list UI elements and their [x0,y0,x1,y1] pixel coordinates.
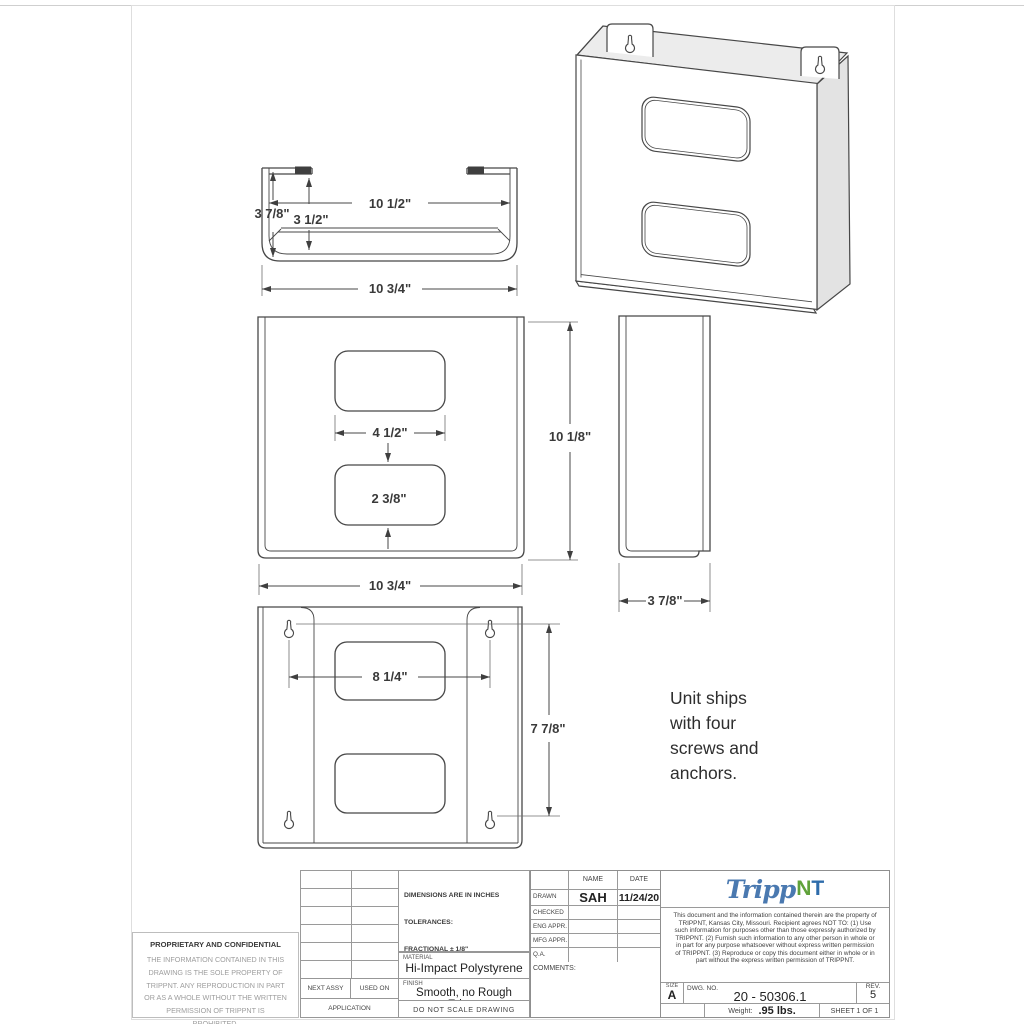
sheet-label: SHEET 1 OF 1 [831,1006,879,1015]
approval-row-checked: CHECKED [531,906,660,920]
drawing-views: 10 1/2" 3 7/8" 3 1/2" 10 3/4" [0,0,1024,870]
do-not-scale-cell: DO NOT SCALE DRAWING [398,1000,530,1018]
proprietary-block: PROPRIETARY AND CONFIDENTIAL THE INFORMA… [132,932,299,1018]
material-label: MATERIAL [399,953,529,961]
drawing-sheet: 10 1/2" 3 7/8" 3 1/2" 10 3/4" [0,0,1024,1024]
rev-cell: REV. 5 [856,983,889,1003]
back-fold-left [301,608,314,844]
material-value: Hi-Impact Polystyrene [399,961,529,975]
dwg-no-cell: DWG. NO. 20 - 50306.1 [684,983,856,1003]
back-keyhole-bottom-right [486,811,495,828]
approvals-header-row: NAME DATE [531,871,660,890]
view-isometric [576,24,850,313]
material-cell: MATERIAL Hi-Impact Polystyrene [398,952,530,979]
finish-label: FINISH [399,979,529,987]
back-fold-right [467,608,480,844]
company-logo: TrippNT [661,871,889,908]
iso-right-face [817,56,850,310]
dim-section-depth: 3 7/8" [254,206,289,221]
next-assy-label: NEXT ASSY [307,985,343,992]
weight-row: Weight: .95 lbs. SHEET 1 OF 1 [661,1004,889,1017]
finish-cell: FINISH Smooth, no Rough Edges [398,978,530,1001]
weight-value: .95 lbs. [758,1005,795,1017]
sheet-cell: SHEET 1 OF 1 [820,1004,889,1017]
revision-grid [300,870,399,979]
weight-cell: Weight: .95 lbs. [705,1004,820,1017]
proprietary-heading: PROPRIETARY AND CONFIDENTIAL [133,940,298,949]
section-lip-end-left [295,167,311,175]
side-inner [626,316,703,551]
view-side: 3 7/8" [619,316,710,612]
size-value: A [661,989,683,1001]
logo-script-text: Tripp [726,875,795,904]
side-outer [619,316,710,557]
dim-section-inner-width: 10 1/2" [369,196,411,211]
application-label: APPLICATION [328,1005,371,1012]
date-header: DATE [618,871,660,889]
back-keyhole-top-right [486,620,495,637]
approval-label: MFG APPR. [531,934,569,947]
approval-date: 11/24/20 [618,890,660,905]
dim-front-width: 10 3/4" [369,578,411,593]
approval-row-drawn: DRAWN SAH 11/24/20 [531,890,660,906]
name-header: NAME [569,871,618,889]
approval-label: Q.A. [531,948,569,962]
comments-cell: COMMENTS: [531,962,660,1020]
dwg-no-label: DWG. NO. [687,985,718,992]
legal-notice: This document and the information contai… [661,908,889,983]
dim-front-height: 10 1/8" [549,429,591,444]
size-cell: SIZE A [661,983,684,1003]
dim-section-outer-width: 10 3/4" [369,281,411,296]
logo-letter-n: N [796,877,811,901]
used-on-cell: USED ON [350,978,399,999]
view-back: 8 1/4" 7 7/8" [258,607,566,848]
do-not-scale-label: DO NOT SCALE DRAWING [413,1005,515,1014]
approval-label: DRAWN [531,890,569,905]
company-block: TrippNT This document and the informatio… [660,870,890,1018]
front-slot-upper [335,351,445,411]
dim-front-slot-height: 2 3/8" [371,491,406,506]
approval-label: CHECKED [531,906,569,919]
section-inner [269,168,510,254]
dwg-row: SIZE A DWG. NO. 20 - 50306.1 REV. 5 [661,983,889,1004]
back-keyhole-bottom-left [285,811,294,828]
application-cell: APPLICATION [300,998,399,1018]
approval-name: SAH [569,890,618,905]
tolerance-block: DIMENSIONS ARE IN INCHES TOLERANCES: FRA… [398,870,530,952]
section-lip-end-right [468,167,484,175]
used-on-label: USED ON [360,985,390,992]
approval-label: ENG APPR. [531,920,569,933]
dim-front-slot-width: 4 1/2" [372,425,407,440]
shipping-note: Unit ships with four screws and anchors. [670,686,782,785]
iso-front-face [576,55,817,309]
approval-row-qa: Q.A. [531,948,660,962]
logo-letter-t: T [811,877,824,901]
revision-grid-divider [351,871,352,978]
next-assy-cell: NEXT ASSY [300,978,351,999]
approvals-table: NAME DATE DRAWN SAH 11/24/20 CHECKED ENG… [530,870,661,1018]
back-keyhole-top-left [285,620,294,637]
dim-back-keyhole-spacing: 8 1/4" [372,669,407,684]
rev-value: 5 [857,990,889,1001]
back-outer [258,607,522,848]
weight-label: Weight: [728,1006,752,1015]
dim-side-depth: 3 7/8" [647,593,682,608]
dim-section-inner-depth: 3 1/2" [293,212,328,227]
view-front: 4 1/2" 2 3/8" 10 1/8" 10 3/4" [258,317,591,595]
comments-label: COMMENTS: [533,965,576,972]
tolerance-line: DIMENSIONS ARE IN INCHES [404,892,529,901]
weight-blank-cell [661,1004,705,1017]
back-slot-lower [335,754,445,813]
dim-back-keyhole-rise: 7 7/8" [530,721,565,736]
view-top-section: 10 1/2" 3 7/8" 3 1/2" 10 3/4" [254,167,517,297]
proprietary-body: THE INFORMATION CONTAINED IN THIS DRAWIN… [143,954,289,1024]
approval-row-mfg: MFG APPR. [531,934,660,948]
tolerance-line: TOLERANCES: [404,919,529,928]
approval-row-eng: ENG APPR. [531,920,660,934]
